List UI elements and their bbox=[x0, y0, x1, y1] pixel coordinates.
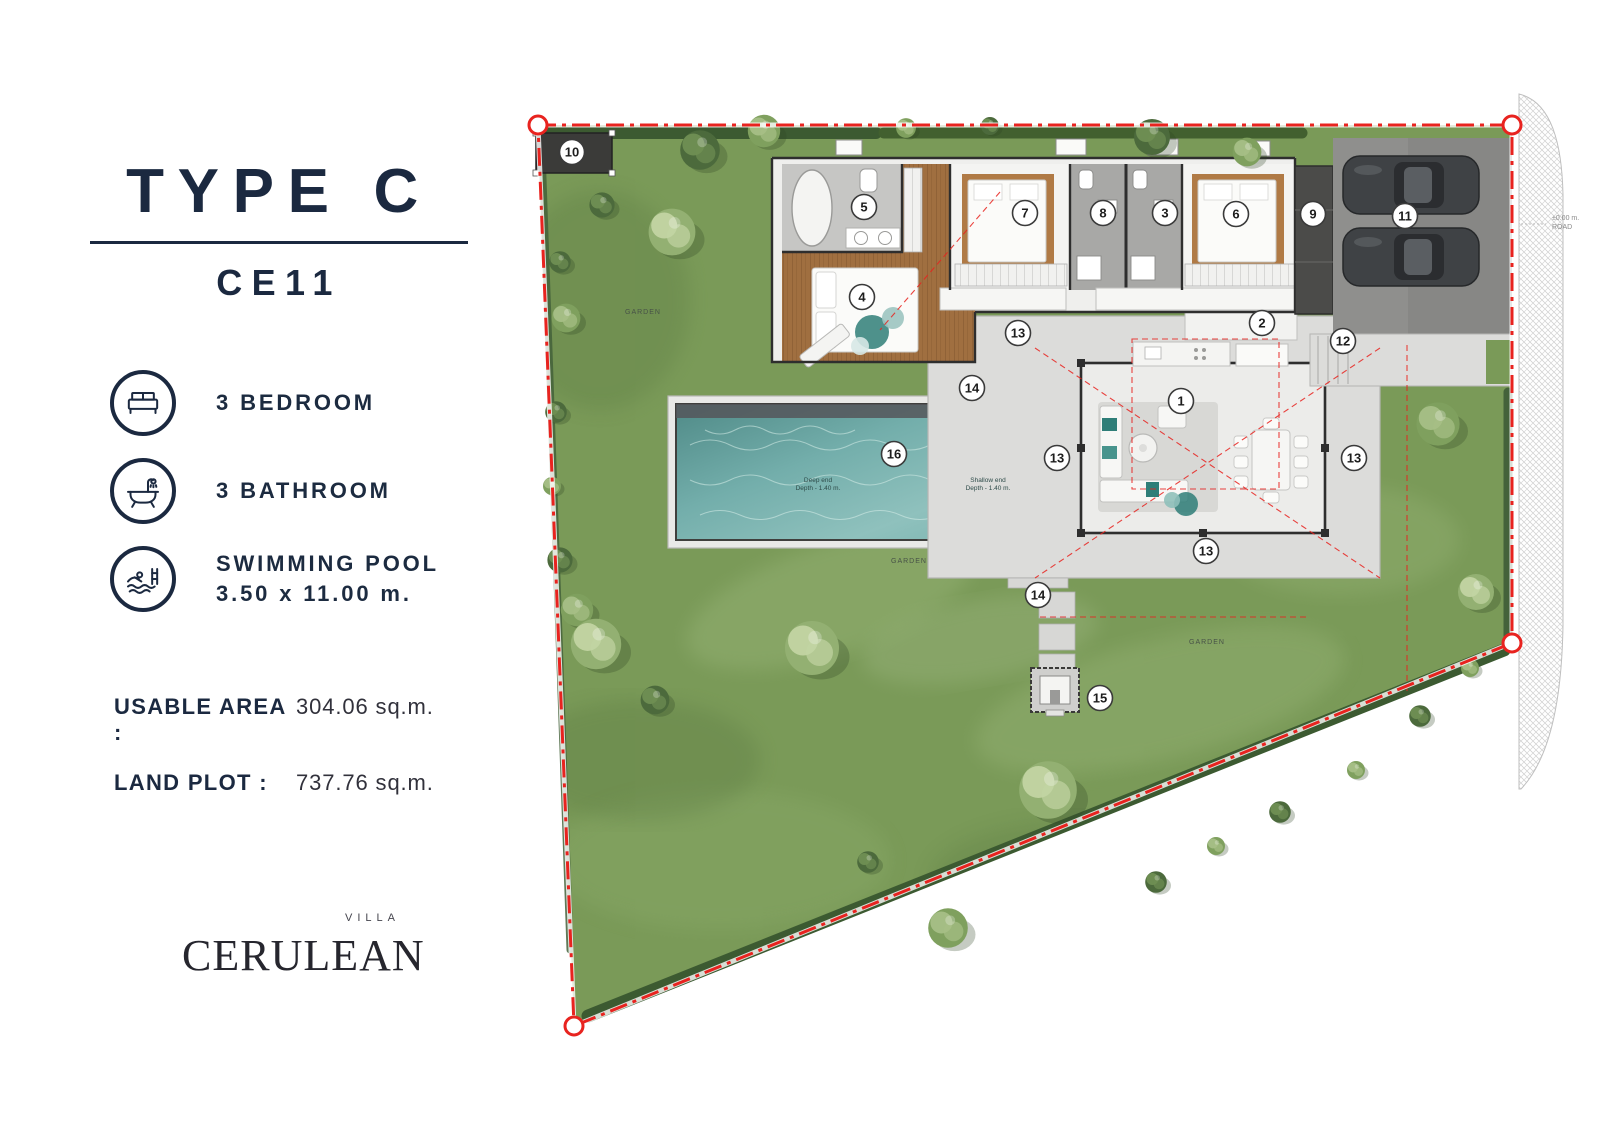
road-label: ROAD bbox=[1552, 224, 1572, 231]
svg-text:16: 16 bbox=[887, 447, 901, 462]
floorplan-page: TYPE C CE11 3 BEDROOM bbox=[0, 0, 1600, 1132]
tree bbox=[1409, 705, 1435, 728]
svg-text:14: 14 bbox=[965, 381, 980, 396]
plan-marker-13: 13 bbox=[1006, 321, 1031, 346]
svg-text:13: 13 bbox=[1347, 451, 1361, 466]
road-label: ±0.00 m. bbox=[1552, 215, 1579, 222]
site-plan: GARDENGARDENGARDENDeep endDepth - 1.40 m… bbox=[0, 0, 1600, 1132]
svg-text:12: 12 bbox=[1336, 334, 1350, 349]
car bbox=[1343, 228, 1479, 286]
tree bbox=[1347, 761, 1369, 781]
living-pavilion bbox=[1077, 342, 1329, 537]
plan-marker-9: 9 bbox=[1301, 202, 1326, 227]
plan-marker-15: 15 bbox=[1088, 686, 1113, 711]
tree bbox=[1145, 871, 1171, 894]
svg-text:2: 2 bbox=[1258, 316, 1265, 331]
plan-marker-11: 11 bbox=[1393, 204, 1418, 229]
plan-marker-14: 14 bbox=[960, 376, 985, 401]
pool-depth-label: Shallow endDepth - 1.40 m. bbox=[966, 477, 1011, 492]
plan-marker-5: 5 bbox=[852, 195, 877, 220]
svg-text:13: 13 bbox=[1199, 544, 1213, 559]
svg-text:15: 15 bbox=[1093, 691, 1107, 706]
garden-label: GARDEN bbox=[1189, 639, 1225, 646]
plan-marker-13: 13 bbox=[1342, 446, 1367, 471]
svg-text:13: 13 bbox=[1011, 326, 1025, 341]
tree bbox=[1207, 837, 1229, 857]
plan-marker-3: 3 bbox=[1153, 201, 1178, 226]
svg-text:6: 6 bbox=[1232, 207, 1239, 222]
plan-marker-13: 13 bbox=[1045, 446, 1070, 471]
plan-marker-4: 4 bbox=[850, 285, 875, 310]
svg-text:14: 14 bbox=[1031, 588, 1046, 603]
tree bbox=[928, 908, 975, 951]
plan-marker-2: 2 bbox=[1250, 311, 1275, 336]
tree bbox=[1269, 801, 1295, 824]
svg-text:5: 5 bbox=[860, 200, 867, 215]
svg-text:13: 13 bbox=[1050, 451, 1064, 466]
garden-label: GARDEN bbox=[891, 558, 927, 565]
plan-marker-6: 6 bbox=[1224, 202, 1249, 227]
plan-marker-7: 7 bbox=[1013, 201, 1038, 226]
svg-text:7: 7 bbox=[1021, 206, 1028, 221]
plan-marker-8: 8 bbox=[1091, 201, 1116, 226]
plan-marker-14: 14 bbox=[1026, 583, 1051, 608]
utility-room bbox=[1295, 166, 1333, 314]
svg-text:11: 11 bbox=[1398, 209, 1412, 224]
garden-label: GARDEN bbox=[625, 309, 661, 316]
svg-text:10: 10 bbox=[565, 145, 579, 160]
svg-text:3: 3 bbox=[1161, 206, 1168, 221]
svg-text:1: 1 bbox=[1177, 394, 1184, 409]
svg-text:4: 4 bbox=[858, 290, 866, 305]
plan-marker-13: 13 bbox=[1194, 539, 1219, 564]
svg-text:9: 9 bbox=[1309, 207, 1316, 222]
plan-marker-12: 12 bbox=[1331, 329, 1356, 354]
plan-marker-1: 1 bbox=[1169, 389, 1194, 414]
shrine bbox=[1031, 668, 1079, 716]
plan-marker-16: 16 bbox=[882, 442, 907, 467]
plan-marker-10: 10 bbox=[560, 140, 585, 165]
svg-text:8: 8 bbox=[1099, 206, 1106, 221]
road bbox=[1519, 94, 1563, 789]
